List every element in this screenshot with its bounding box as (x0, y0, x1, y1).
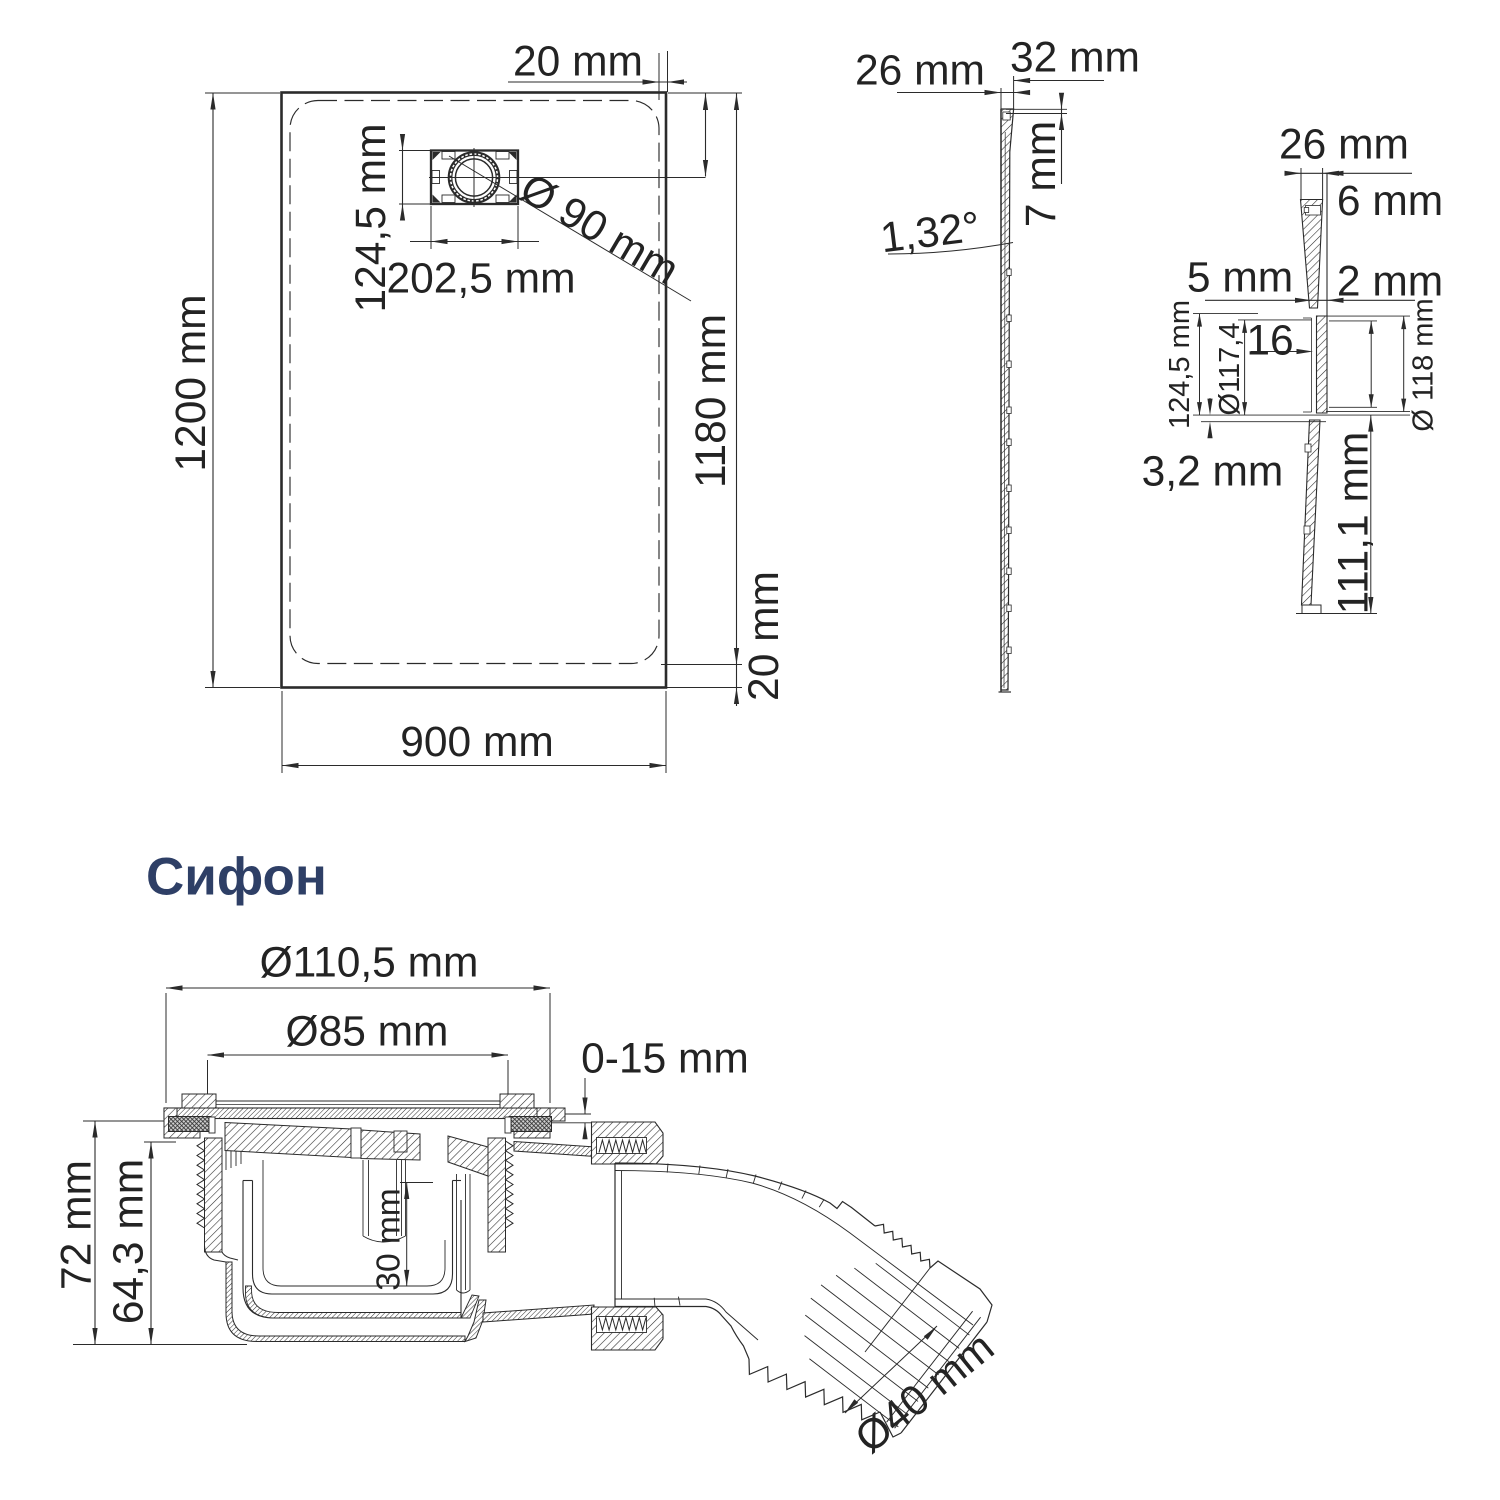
svg-text:7 mm: 7 mm (1018, 121, 1065, 227)
svg-text:202,5 mm: 202,5 mm (387, 255, 576, 302)
svg-text:0-15 mm: 0-15 mm (581, 1035, 749, 1082)
svg-text:Сифон: Сифон (146, 848, 327, 907)
svg-text:3,2 mm: 3,2 mm (1142, 448, 1284, 495)
svg-text:72 mm: 72 mm (53, 1160, 100, 1290)
svg-text:26 mm: 26 mm (855, 47, 985, 94)
svg-text:20 mm: 20 mm (513, 38, 643, 85)
svg-text:5 mm: 5 mm (1187, 254, 1293, 301)
svg-text:111,1 mm: 111,1 mm (1330, 432, 1377, 615)
svg-text:Ø110,5 mm: Ø110,5 mm (260, 939, 479, 986)
svg-text:Ø85 mm: Ø85 mm (286, 1008, 449, 1055)
svg-text:32 mm: 32 mm (1010, 34, 1140, 81)
svg-text:26 mm: 26 mm (1279, 121, 1409, 168)
svg-text:124,5 mm: 124,5 mm (1164, 300, 1196, 429)
svg-text:16: 16 (1246, 317, 1293, 364)
svg-text:6 mm: 6 mm (1337, 178, 1443, 225)
svg-text:20 mm: 20 mm (741, 571, 788, 701)
svg-text:1200 mm: 1200 mm (168, 294, 215, 471)
svg-text:Ø117,4: Ø117,4 (1214, 323, 1246, 416)
svg-text:64,3 mm: 64,3 mm (105, 1159, 152, 1324)
svg-text:Ø 118 mm: Ø 118 mm (1408, 298, 1440, 431)
svg-text:1180 mm: 1180 mm (688, 314, 735, 488)
svg-text:900 mm: 900 mm (400, 719, 554, 766)
